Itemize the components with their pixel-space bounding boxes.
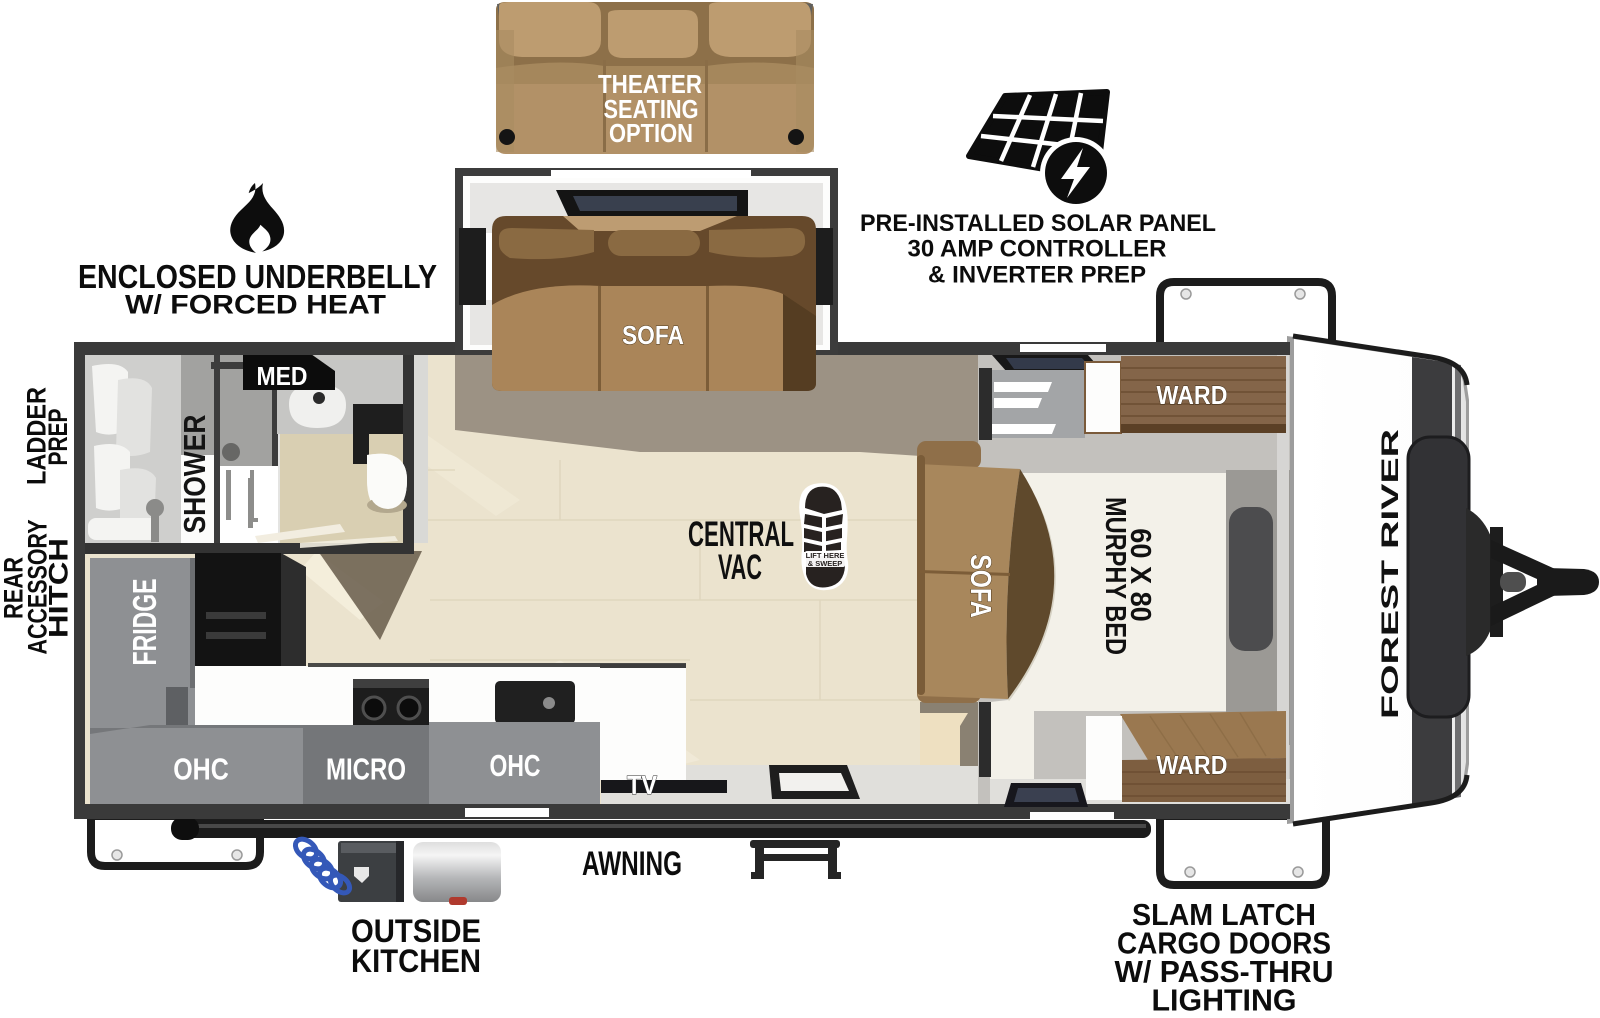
svg-text:HITCH: HITCH	[44, 538, 74, 638]
svg-text:AWNING: AWNING	[582, 845, 682, 883]
svg-text:& INVERTER PREP: & INVERTER PREP	[928, 262, 1146, 289]
svg-text:FOREST RIVER: FOREST RIVER	[1377, 429, 1404, 719]
svg-text:OPTION: OPTION	[609, 118, 693, 148]
svg-text:MED: MED	[257, 361, 308, 391]
svg-text:SHOWER: SHOWER	[177, 415, 212, 534]
svg-text:SOFA: SOFA	[622, 322, 684, 350]
svg-text:MURPHY BED: MURPHY BED	[1099, 497, 1131, 655]
svg-text:OHC: OHC	[490, 749, 541, 783]
svg-text:30 AMP CONTROLLER: 30 AMP CONTROLLER	[908, 236, 1167, 263]
svg-text:WARD: WARD	[1157, 750, 1228, 780]
svg-text:TV: TV	[627, 770, 658, 800]
svg-text:PREP: PREP	[43, 409, 73, 466]
svg-text:OHC: OHC	[173, 753, 229, 787]
svg-text:W/ FORCED HEAT: W/ FORCED HEAT	[125, 290, 387, 320]
svg-text:PRE-INSTALLED SOLAR PANEL: PRE-INSTALLED SOLAR PANEL	[860, 210, 1216, 237]
svg-text:MICRO: MICRO	[326, 753, 406, 787]
svg-text:LIGHTING: LIGHTING	[1152, 984, 1297, 1018]
svg-text:WARD: WARD	[1157, 380, 1228, 410]
svg-text:KITCHEN: KITCHEN	[351, 943, 481, 979]
svg-text:& SWEEP: & SWEEP	[808, 559, 843, 568]
svg-text:SOFA: SOFA	[964, 554, 996, 618]
svg-text:VAC: VAC	[718, 548, 762, 587]
svg-text:FRIDGE: FRIDGE	[126, 579, 163, 666]
